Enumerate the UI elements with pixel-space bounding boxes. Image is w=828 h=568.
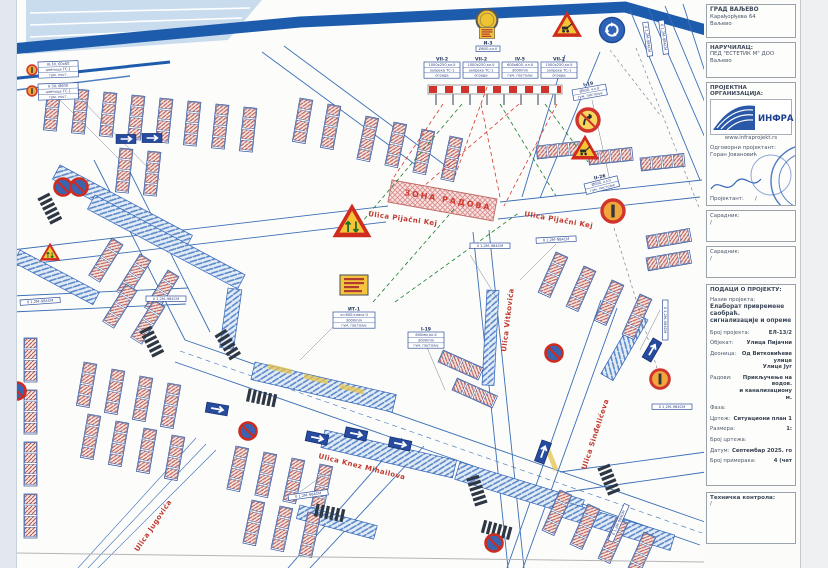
street-label: Ulica Jugovića [133,498,174,553]
svg-text:1000x250,кл.II: 1000x250,кл.II [545,63,572,67]
owner-address: Карађорђева 64 [710,14,792,21]
svg-text:0 1,2М–984СМ: 0 1,2М–984СМ [663,307,667,334]
responsible-label: Одговорни пројектант: [710,145,792,152]
designer-label: Пројектант: [710,196,744,203]
street-label: Ulica Vitkovića [500,288,516,352]
paper-left-edge [0,0,17,568]
collab1-value: / [710,220,792,227]
sign-spec-table: III-30, 60x60цевчица ТС-1гум. пост. [38,61,79,79]
collaborator-box-1: Сарадник: / [706,210,796,242]
client-city: Ваљево [710,58,792,65]
svg-text:3000mm: 3000mm [418,338,435,342]
sign-spec-table: I-19Ø600, кл.IIгум. постоље [571,79,607,101]
sign-rect-arrow [205,402,228,416]
collab1-label: Сарадник: [710,213,792,220]
sign-circ-bar [602,200,624,222]
svg-text:III-30, 60x60: III-30, 60x60 [47,62,70,67]
svg-text:гум. пост.: гум. пост. [49,95,68,100]
project-data-label: ПОДАЦИ О ПРОЈЕКТУ: [710,287,792,293]
project-field-row: Број цртежа: [710,437,792,444]
client-name: ПЕД "ЕСТЕТИК М" ДОО [710,51,792,58]
logo-text: ИНФРА про [758,114,795,124]
sign-spec-table: II-26Ø600, кл.IIгум. постоље [583,170,620,194]
collaborator-box-2: Сарадник: / [706,246,796,278]
sign-circ-round [600,18,625,43]
sign-circ-turn [577,109,599,131]
svg-text:гум. постоље: гум. постоље [341,324,367,328]
street-label: Ulica Pijačni Kej [368,210,438,228]
svg-text:гум. постоље: гум. постоље [507,74,533,78]
svg-text:а=600,класа II: а=600,класа II [340,313,367,317]
sign-spec-table: VII-21000x250,кл.IIзапрека ТС-1ограда [424,56,460,78]
sign-circ-nostop [486,535,503,552]
sign-circ-nostop [71,179,88,196]
sign-spec-table: 0 1,2М–984СМ [659,20,669,54]
sign-tri-pass [40,243,61,261]
project-name-line2: сигнализације и опреме [710,318,792,325]
project-field-row: Цртеж:Ситуациони план 1 [710,416,792,423]
sign-spec-table: И-3Ø600,кл.II [476,40,500,51]
sign-spec-table: VII-21000x250,кл.IIзапрека ТС-1ограда [463,56,499,78]
scanned-traffic-plan-sheet: ЗОНА РАДОВА [0,0,828,568]
svg-text:ИТ-1: ИТ-1 [348,306,360,312]
svg-text:3000mm: 3000mm [512,68,529,72]
sign-rect-arrow [142,134,162,143]
svg-text:3000mm: 3000mm [346,318,363,322]
svg-text:ограда: ограда [435,74,448,78]
svg-text:0 1,2М–984СМ: 0 1,2М–984СМ [659,405,686,409]
sign-rect-arrow [642,338,662,362]
svg-text:1000x250,кл.II: 1000x250,кл.II [428,63,455,67]
svg-text:600x600, кл.II: 600x600, кл.II [507,63,533,67]
project-field-row: Датум:Септембар 2025. го [710,448,792,455]
svg-text:0 1,2М–984СМ: 0 1,2М–984СМ [153,297,180,301]
project-name-label: Назив пројекта: [710,297,792,304]
paper-right-edge [800,0,828,568]
svg-text:запрека ТС-1: запрека ТС-1 [469,68,494,72]
org-url: www.infraprojekt.rs [710,135,792,142]
sign-spec-table: 0 1,2М–984СМ [20,297,60,305]
sign-circ-nostop [546,345,563,362]
svg-text:И-3: И-3 [484,40,493,46]
sign-circ-nostop [55,179,72,196]
svg-text:I-19: I-19 [421,326,431,332]
owner-city: Ваљево [710,21,792,28]
svg-text:Ø600,кл.II: Ø600,кл.II [479,46,498,51]
sign-circ-bar [27,86,37,96]
designer-value: / [755,196,757,203]
project-data-box: ПОДАЦИ О ПРОЈЕКТУ: Назив пројекта: Елабо… [706,284,796,486]
project-field-row: Радови:Прикључење на водов.и канализацио… [710,375,792,401]
project-field-row: Број примерака:4 (чет [710,458,792,465]
svg-text:запрека ТС-1: запрека ТС-1 [547,68,572,72]
river-and-top-road [0,0,706,92]
sign-spec-table: 0 1,2М–984СМ [643,22,653,56]
sign-spec-table: 0 1,2М–984СМ [652,404,692,409]
logo-arc [713,106,755,131]
project-field-row: Деоница:Од Витковићеве улицеУлице Југ [710,351,792,371]
sign-spec-table: I-19600мм,кл.II3000mmгум. постоље [408,326,444,348]
collab2-label: Сарадник: [710,249,792,256]
org-box: ПРОЈЕКТНА ОРГАНИЗАЦИЈА: ИНФРА про www.in… [706,82,796,206]
project-field-row: Размера:1: [710,426,792,433]
svg-text:IV-5: IV-5 [515,56,525,62]
sign-spec-table: VII-21000x250,кл.IIзапрека ТС-1ограда [541,56,577,78]
sign-infoboard [340,275,368,295]
svg-text:ограда: ограда [552,74,565,78]
sign-spec-table: ИТ-1а=600,класа II3000mmгум. постоље [333,306,375,328]
sign-spec-table: 0 1,2М–984СМ [536,236,576,243]
owner-box: ГРАД ВАЉЕВО Карађорђева 64 Ваљево [706,4,796,38]
svg-text:ограда: ограда [474,74,487,78]
project-name-line1: Елаборат привремене саобраћ. [710,304,792,318]
street-label: Ulica Sinđelićeva [580,398,610,471]
project-field-row: Фаза: [710,405,792,412]
sign-spec-table: 0 1,2М–984СМ [470,243,510,248]
sign-circ-bar [651,370,670,389]
svg-text:гум. постоље: гум. постоље [413,344,439,348]
svg-text:VII-2: VII-2 [436,56,448,62]
tech-control-value: / [710,501,792,508]
sign-spec-table: 0 1,2М–984СМ [663,300,668,340]
barrier-fence-diagram [428,85,562,105]
svg-text:1000x250,кл.II: 1000x250,кл.II [467,63,494,67]
client-box: НАРУЧИЛАЦ: ПЕД "ЕСТЕТИК М" ДОО Ваљево [706,42,796,78]
sign-spec-table: 0 1,2М–984СМ [146,296,186,301]
sign-spec-table: IV-5600x600, кл.II3000mmгум. постоље [502,56,538,78]
org-logo: ИНФРА про [710,99,792,135]
project-field-rows: Број пројекта:ЕЛ-13/2Објекат:Улица Пијач… [710,330,792,465]
street-label: Ulica Pijačni Kej [524,210,594,230]
sign-circ-bar [27,65,37,75]
round-stamp-inner [779,153,796,206]
collab2-value: / [710,256,792,263]
project-field-row: Објекат:Улица Пијачни [710,340,792,347]
tech-control-box: Техничка контрола: / [706,492,796,544]
sign-infoboard [479,28,494,39]
svg-text:VII-2: VII-2 [475,56,487,62]
sign-rect-arrow [116,135,136,144]
svg-text:600мм,кл.II: 600мм,кл.II [415,333,436,337]
svg-text:0 1,2М–984СМ: 0 1,2М–984СМ [477,244,504,248]
svg-text:гум. пост.: гум. пост. [49,73,68,78]
svg-text:II-30, Ø600: II-30, Ø600 [48,83,69,89]
sign-spec-table: II-30, Ø600цевчица ТС-1гум. пост. [38,83,79,101]
org-label: ПРОЈЕКТНА ОРГАНИЗАЦИЈА: [710,85,792,97]
svg-text:запрека ТС-1: запрека ТС-1 [430,68,455,72]
svg-text:VII-2: VII-2 [553,56,565,62]
leader-lines [60,48,700,492]
project-field-row: Број пројекта:ЕЛ-13/2 [710,330,792,337]
sign-circ-nostop [240,423,257,440]
title-block: ГРАД ВАЉЕВО Карађорђева 64 Ваљево НАРУЧИ… [704,0,800,568]
